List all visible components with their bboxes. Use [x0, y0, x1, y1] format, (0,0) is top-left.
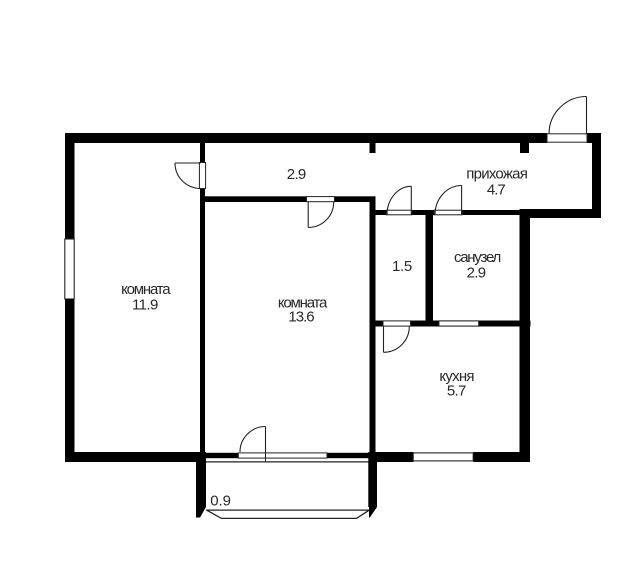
svg-text:1.5: 1.5 [392, 258, 412, 275]
svg-text:прихожая: прихожая [466, 166, 528, 183]
svg-text:2.9: 2.9 [467, 265, 486, 282]
svg-text:5.7: 5.7 [447, 383, 466, 400]
svg-text:4.7: 4.7 [487, 182, 506, 199]
svg-text:11.9: 11.9 [132, 297, 158, 314]
svg-text:0.9: 0.9 [210, 492, 231, 509]
svg-text:санузел: санузел [454, 249, 501, 266]
svg-text:2.9: 2.9 [287, 166, 306, 183]
svg-text:13.6: 13.6 [288, 309, 314, 326]
svg-text:комната: комната [121, 281, 171, 298]
